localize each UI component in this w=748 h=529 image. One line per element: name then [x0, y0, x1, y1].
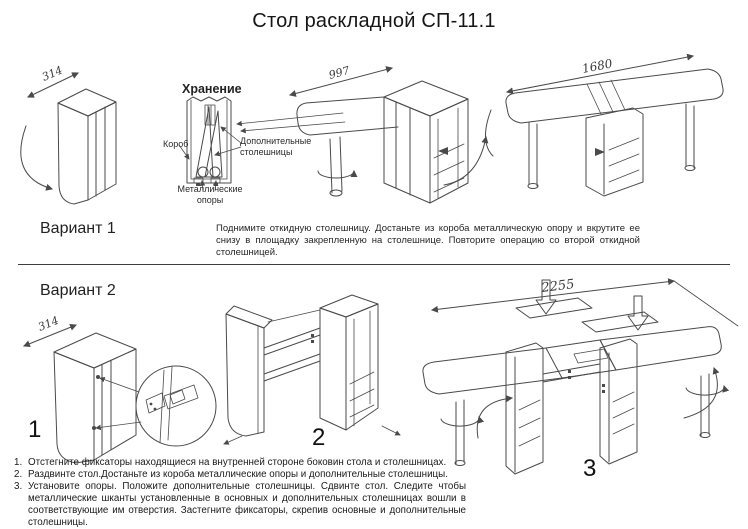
- folded-table-front-panel: [58, 103, 88, 204]
- far-left-leg: [456, 400, 464, 464]
- left-column-outline: [506, 343, 543, 474]
- variant2-label: Вариант 2: [40, 282, 116, 300]
- step-text: Отстегните фиксаторы находящиеся на внут…: [28, 457, 466, 469]
- far-right-leg: [701, 374, 709, 436]
- assembly-step-1: 1. Отстегните фиксаторы находящиеся на в…: [14, 457, 466, 469]
- leg-rotation-arrow-icon: [318, 171, 354, 178]
- left-leg-rotation-arrow-icon: [441, 417, 479, 426]
- right-box-left-face: [320, 308, 346, 430]
- tabletop-outline: [506, 69, 723, 123]
- under-box-outline: [586, 108, 643, 196]
- assembly-step-2: 2. Раздвинте стол.Достаньте из короба ме…: [14, 469, 466, 481]
- center-section-top: [546, 340, 616, 378]
- left-leg: [529, 122, 537, 186]
- dowel-dot: [602, 384, 605, 387]
- rail-dowel-dot: [568, 370, 571, 373]
- latch-screw-dot2: [154, 408, 157, 411]
- right-leaf-top: [600, 327, 721, 370]
- right-leg: [686, 104, 694, 168]
- dowel-dot2: [602, 390, 605, 393]
- latch-position-dot: [96, 375, 100, 379]
- folded-table-top-face: [54, 333, 136, 368]
- tabletop-seam-lines: [587, 80, 625, 114]
- right-box-top: [320, 295, 378, 317]
- center-box-left-face: [384, 97, 430, 203]
- swing-arrow-left-icon: [477, 398, 512, 438]
- metal-supports-shape: [196, 107, 222, 177]
- center-box-top-face: [384, 81, 468, 116]
- step1-marker: 1: [28, 416, 41, 444]
- variant2-slid-apart-drawing: [212, 286, 408, 458]
- dowel-dot2: [311, 340, 314, 343]
- folded-table-side-panels: [88, 102, 116, 200]
- extra-leaf-floating: [516, 298, 592, 318]
- page-title: Стол раскладной СП-11.1: [0, 10, 748, 33]
- variant1-folded-table-drawing: 314: [8, 56, 168, 221]
- dimension-997-label: 997: [327, 64, 351, 82]
- step-number: 3.: [14, 481, 28, 529]
- folded-table-top-face: [58, 89, 116, 116]
- variant1-instructions: Поднимите откидную столешницу. Достаньте…: [216, 223, 640, 260]
- dimension-1680-label: 1680: [581, 56, 614, 76]
- right-column-outline: [600, 339, 637, 464]
- support-foot-left: [198, 167, 208, 177]
- variant1-label: Вариант 1: [40, 220, 116, 238]
- lower-connecting-rail: [264, 354, 320, 381]
- left-column-shelves: [519, 400, 540, 446]
- left-leaf-top: [423, 348, 562, 394]
- variant1-open-table-drawing: 1680: [483, 42, 748, 234]
- back-top-rail: [268, 310, 320, 322]
- step-number: 2.: [14, 469, 28, 481]
- center-niche: [574, 349, 608, 363]
- folded-table-side-panels: [94, 349, 136, 460]
- open-leaf-top: [297, 97, 398, 135]
- variant2-folded-table-drawing: 314: [12, 300, 224, 468]
- latch-position-dot2: [92, 426, 96, 430]
- extra-leaf-floating2: [582, 312, 658, 332]
- right-column-shelves: [613, 392, 634, 434]
- under-box-shelves: [609, 138, 639, 182]
- table-leg: [330, 137, 342, 193]
- storage-heading: Хранение: [182, 82, 242, 96]
- support-foot-right: [210, 167, 220, 177]
- right-leg-rotation-arrow-icon: [686, 386, 724, 395]
- folded-table-front-panel: [54, 352, 94, 463]
- unfold-arc-fragment-icon: [485, 110, 493, 156]
- extra-tops-leader-arrow2-icon: [215, 147, 241, 155]
- right-box-shelves: [350, 311, 374, 426]
- detail-leader-arrow2-icon: [96, 422, 141, 428]
- assembly-step-3: 3. Установите опоры. Положите дополнител…: [14, 481, 466, 529]
- latch-screw-dot: [150, 403, 153, 406]
- step-number: 1.: [14, 457, 28, 469]
- detail-leader-arrow-icon: [100, 378, 139, 392]
- section-divider: [18, 264, 730, 265]
- step-text: Установите опоры. Положите дополнительны…: [28, 481, 466, 529]
- assembly-steps-list: 1. Отстегните фиксаторы находящиеся на в…: [14, 457, 466, 529]
- storage-box-label: Короб: [163, 139, 188, 150]
- center-box-shelves: [434, 108, 464, 198]
- variant1-half-open-table-drawing: 997: [272, 55, 490, 220]
- unfold-sweep-arrow-icon: [444, 137, 486, 185]
- step2-marker: 2: [312, 424, 325, 452]
- instruction-sheet: Стол раскладной СП-11.1 314 Вариант 1 Хр…: [0, 0, 748, 529]
- fold-curved-arrow-icon: [21, 126, 52, 189]
- rail-dowel-dot2: [568, 376, 571, 379]
- metal-supports-label: Металлические опоры: [172, 184, 248, 205]
- step-text: Раздвинте стол.Достаньте из короба метал…: [28, 469, 466, 481]
- step3-marker: 3: [583, 455, 596, 483]
- dimension-314-v2-label: 314: [36, 314, 60, 334]
- dowel-dot: [311, 334, 314, 337]
- slide-arrow-left-icon: [224, 436, 242, 444]
